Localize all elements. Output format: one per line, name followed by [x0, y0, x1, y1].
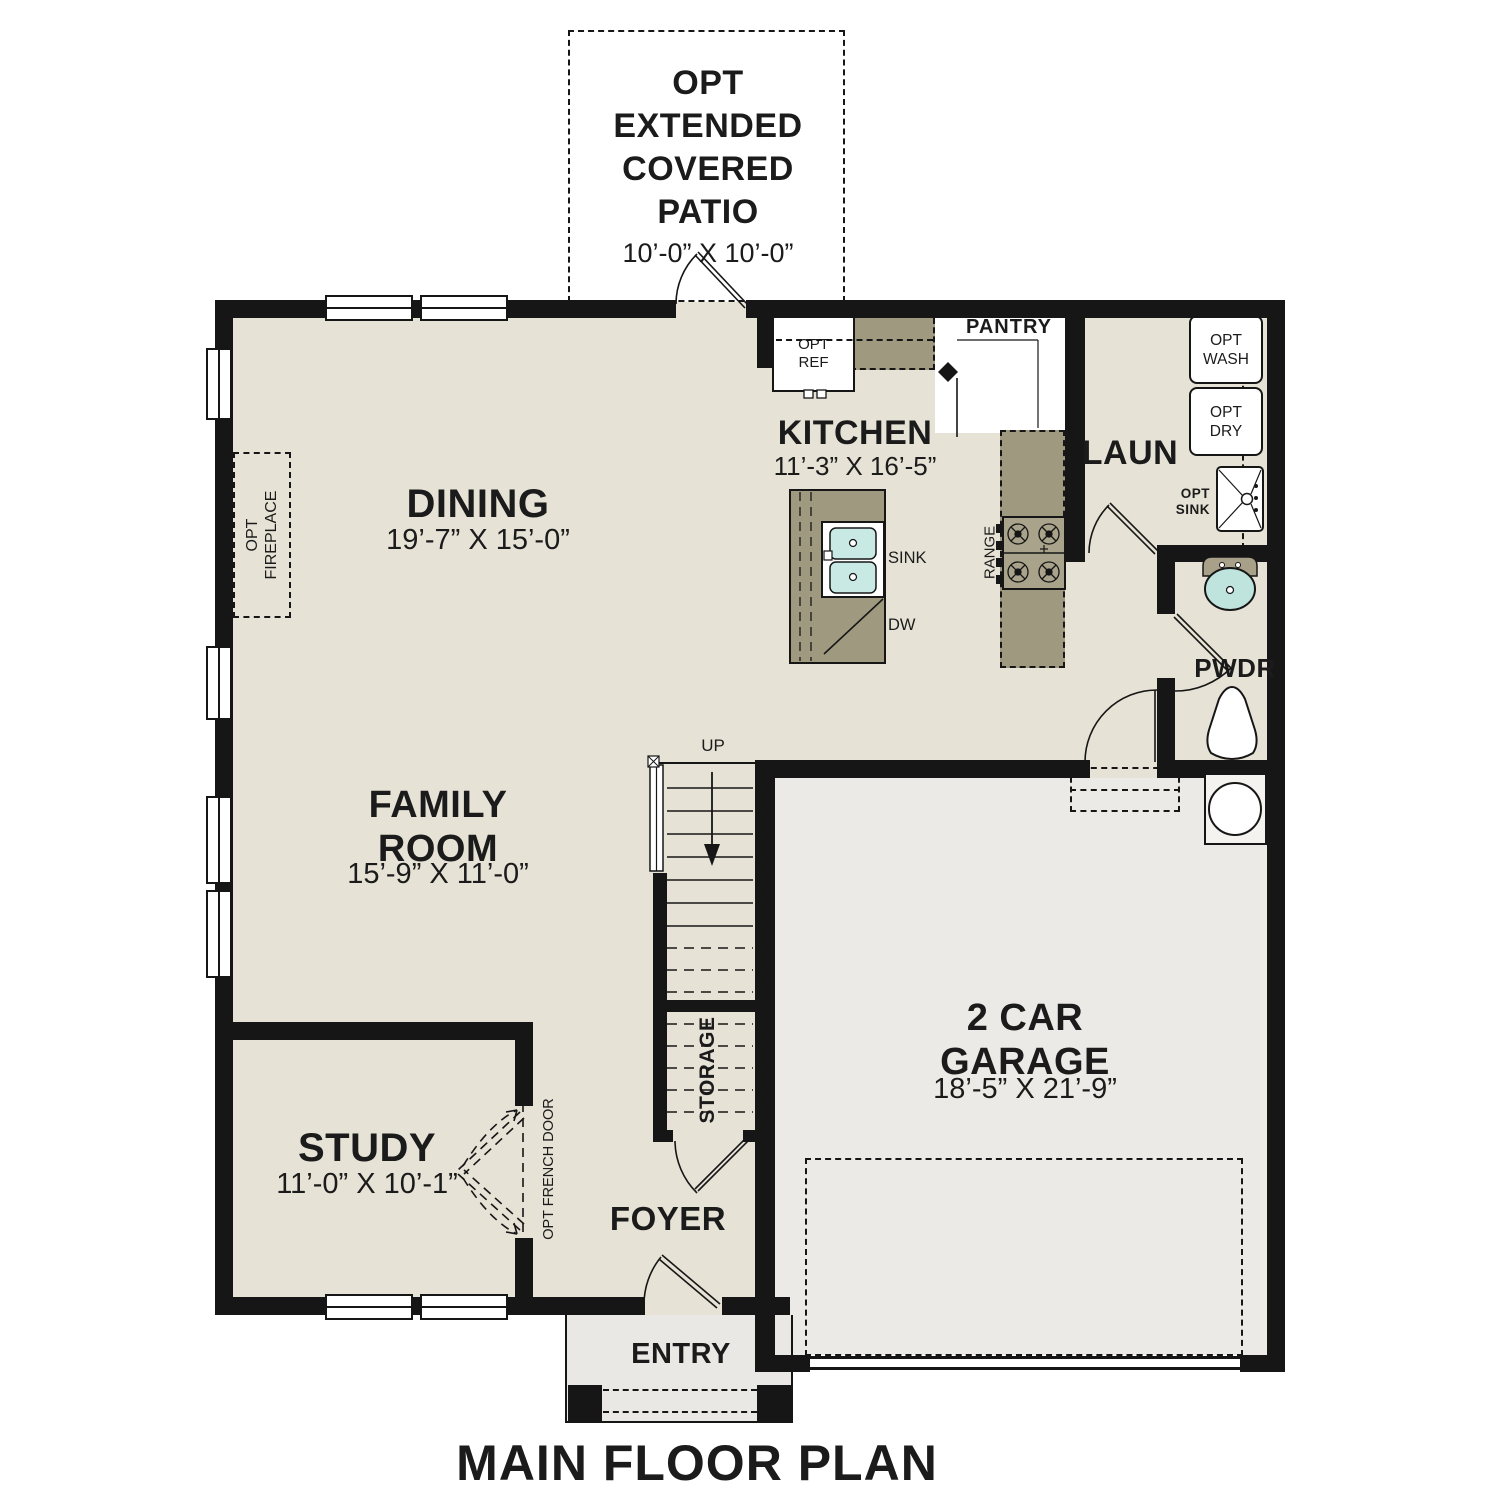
window	[325, 295, 413, 321]
porch-pillar	[568, 1385, 602, 1423]
window	[206, 796, 232, 884]
wall	[755, 760, 775, 1360]
window	[206, 890, 232, 978]
wall	[215, 1022, 533, 1040]
opt-wash-label: OPT WASH	[1203, 331, 1249, 369]
storage-label: STORAGE	[696, 1015, 720, 1125]
dw-label: DW	[888, 616, 948, 635]
family-room-dims: 15’-9” X 11’-0”	[288, 858, 588, 891]
wall	[1157, 678, 1175, 760]
opt-fireplace-label: OPT FIREPLACE	[243, 475, 281, 595]
laundry-label: LAUN	[1040, 434, 1220, 473]
opt-french-door-label: OPT FRENCH DOOR	[541, 1094, 557, 1244]
patio-label: OPT EXTENDED COVERED PATIO	[572, 62, 844, 234]
patio-dims: 10’-0” X 10’-0”	[572, 238, 844, 269]
dining-dims: 19’-7” X 15’-0”	[328, 524, 628, 557]
garage-door-clearance	[805, 1158, 1243, 1356]
kitchen-counter-top	[850, 318, 935, 370]
opt-ref-box: OPT REF	[772, 315, 855, 392]
window	[206, 646, 232, 720]
wall	[1065, 545, 1085, 562]
patio-door-threshold	[676, 300, 746, 318]
window	[420, 295, 508, 321]
study-label: STUDY	[217, 1126, 517, 1171]
powder-label: PWDR	[1175, 653, 1295, 684]
floor-plan: OPT REF OPT WASH OPT DRY OPT E	[0, 0, 1500, 1500]
porch-dashed-line	[603, 1411, 757, 1413]
wall	[743, 1130, 775, 1142]
window	[420, 1294, 508, 1320]
wall	[653, 1012, 667, 1134]
range-label: RANGE	[982, 518, 999, 588]
wall	[1157, 545, 1267, 562]
wall	[515, 1238, 533, 1305]
garage-label: 2 CAR GARAGE	[875, 996, 1175, 1084]
wall	[755, 760, 1090, 778]
water-heater	[1208, 782, 1262, 836]
study-dims: 11’-0” X 10’-1”	[217, 1168, 517, 1201]
kitchen-label: KITCHEN	[725, 414, 985, 453]
wall	[757, 318, 772, 368]
porch-dashed-line	[603, 1389, 757, 1391]
wall	[1157, 562, 1175, 614]
wall	[1240, 1355, 1285, 1372]
entry-label: ENTRY	[581, 1338, 781, 1371]
wall	[515, 1030, 533, 1106]
garage-drop-zone-line	[1070, 789, 1180, 791]
kitchen-island	[789, 489, 886, 664]
dining-label: DINING	[328, 482, 628, 527]
page-title: MAIN FLOOR PLAN	[397, 1434, 997, 1492]
foyer-label: FOYER	[568, 1200, 768, 1238]
entry-door-threshold	[645, 1297, 722, 1315]
wall	[1267, 300, 1285, 1372]
water-heater-nook	[1204, 773, 1267, 845]
window	[206, 348, 232, 420]
wall	[653, 873, 667, 1005]
garage-dims: 18’-5” X 21’-9”	[875, 1073, 1175, 1106]
wall	[653, 1130, 673, 1142]
sink-label: SINK	[888, 549, 948, 568]
porch-pillar	[757, 1385, 791, 1423]
opt-sink-label: OPT SINK	[1155, 486, 1210, 518]
window	[325, 1294, 413, 1320]
ref-counter-dashed-line	[776, 339, 933, 341]
garage-door	[810, 1356, 1240, 1370]
opt-washer-box: OPT WASH	[1189, 315, 1263, 384]
pantry-label: PANTRY	[939, 316, 1079, 339]
kitchen-dims: 11’-3” X 16’-5”	[725, 451, 985, 482]
wall	[653, 1000, 758, 1012]
up-label: UP	[683, 736, 743, 756]
